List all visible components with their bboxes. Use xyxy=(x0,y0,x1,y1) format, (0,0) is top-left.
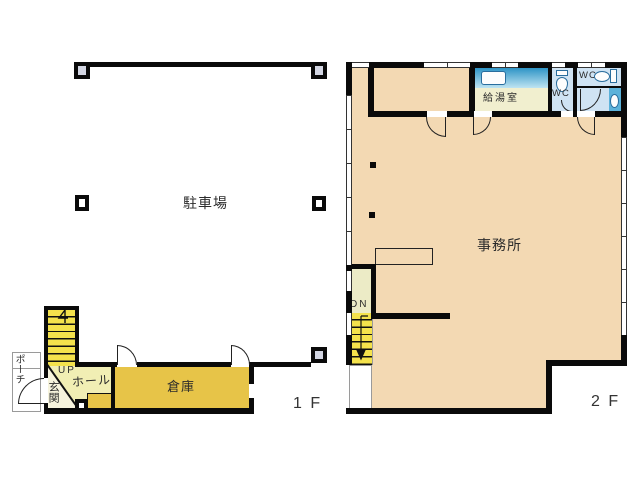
window xyxy=(346,313,352,335)
wall-segment xyxy=(44,362,48,378)
wc-left-label: WC xyxy=(552,89,570,99)
window xyxy=(578,62,605,68)
wall-segment xyxy=(137,362,231,367)
kitchen-wc-wall xyxy=(548,65,552,117)
stairs-edge-line xyxy=(372,313,373,365)
window xyxy=(351,62,369,68)
entrance-label: 玄関 xyxy=(47,381,59,409)
window xyxy=(346,95,352,265)
notch-horizontal-wall xyxy=(546,360,627,366)
storage-door-arc xyxy=(231,345,250,365)
wall-segment xyxy=(371,264,376,313)
dn-label: DN xyxy=(350,299,368,310)
kitchen-sink-icon xyxy=(481,71,506,85)
storage-door-arc xyxy=(117,345,137,365)
office-partition-wall xyxy=(371,313,450,319)
stairs-start-mark-icon xyxy=(55,309,71,324)
office-label: 事務所 xyxy=(477,238,522,253)
kitchen-door-leaf xyxy=(473,117,474,135)
column-pillar xyxy=(75,195,89,211)
column-pillar xyxy=(312,196,326,211)
wall-segment xyxy=(346,291,352,313)
meeting-room-left-wall xyxy=(368,65,374,117)
floorplan-canvas: 駐車場 ポーチ UP ホール 玄関 倉庫 xyxy=(0,0,640,480)
window xyxy=(346,271,352,291)
toilet-bowl-icon xyxy=(594,71,610,82)
door-opening xyxy=(561,111,573,117)
toilet-tank-icon xyxy=(556,70,568,76)
storage-left-wall xyxy=(111,362,115,408)
storage-label: 倉庫 xyxy=(167,380,195,394)
wash-basin-icon xyxy=(610,94,619,108)
floor2-label: 2 F xyxy=(591,393,620,411)
wc-wc-wall xyxy=(573,65,577,117)
wc-door-leaf xyxy=(594,117,595,135)
column-pillar xyxy=(311,347,327,363)
wc-right-inner-door-leaf xyxy=(580,89,581,111)
meeting-room-bottom-wall xyxy=(368,111,475,117)
entrance-door-leaf xyxy=(18,403,44,404)
hall-label: ホール xyxy=(72,374,112,390)
toilet-tank-icon xyxy=(610,69,617,83)
office-counter xyxy=(375,248,433,265)
floor1-label: 1 F xyxy=(293,395,322,413)
window xyxy=(492,62,518,68)
meeting-room-door-leaf xyxy=(445,117,446,137)
storage-door-leaf xyxy=(117,345,118,365)
storage-door-leaf xyxy=(231,345,232,365)
column-pillar xyxy=(74,62,90,79)
column-pillar xyxy=(311,62,327,79)
wall-segment xyxy=(44,403,48,411)
meeting-room-right-wall xyxy=(469,65,475,117)
office-column xyxy=(369,212,375,218)
floor2-left-wall xyxy=(346,62,352,95)
window xyxy=(621,137,627,335)
parking-top-wall xyxy=(74,62,327,67)
notch-vertical-wall xyxy=(546,360,552,414)
wall-segment xyxy=(249,362,311,367)
floor2-bottom-wall xyxy=(346,408,552,414)
storage-side-opening xyxy=(249,384,254,398)
parking-label: 駐車場 xyxy=(183,196,228,211)
stairs-down-arrow-icon xyxy=(354,314,370,362)
stair-void xyxy=(349,365,372,409)
window xyxy=(424,62,470,68)
wall-segment xyxy=(346,335,352,365)
floor1-bottom-wall xyxy=(44,408,254,414)
window xyxy=(552,62,565,68)
kitchen-label: 給湯室 xyxy=(483,93,519,104)
wall-segment xyxy=(75,362,117,367)
office-column xyxy=(370,162,376,168)
